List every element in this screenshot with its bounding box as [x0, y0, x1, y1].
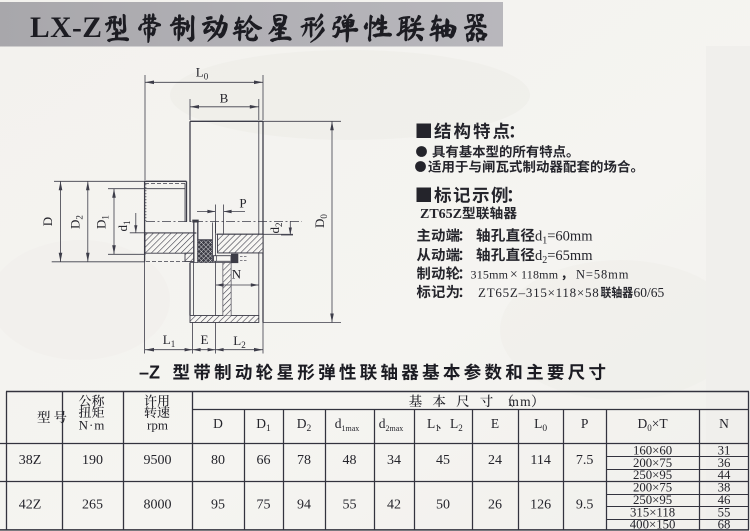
- svg-text:38Z: 38Z: [19, 453, 42, 468]
- svg-text:N: N: [232, 267, 242, 282]
- svg-text:26: 26: [488, 498, 502, 513]
- svg-text:66: 66: [257, 453, 271, 468]
- svg-text:9.5: 9.5: [576, 498, 594, 513]
- svg-text:78: 78: [297, 453, 311, 468]
- svg-text:7.5: 7.5: [576, 453, 594, 468]
- svg-text:60/65: 60/65: [634, 285, 665, 300]
- svg-text:D: D: [213, 416, 223, 431]
- svg-text:94: 94: [297, 498, 311, 513]
- svg-text:9500: 9500: [144, 453, 172, 468]
- svg-text:×: ×: [510, 267, 518, 282]
- svg-text:N=58mm: N=58mm: [576, 268, 629, 282]
- svg-text:rpm: rpm: [147, 418, 168, 433]
- svg-text:–Z: –Z: [139, 363, 160, 383]
- svg-text:ZT65Z: ZT65Z: [420, 207, 462, 222]
- svg-text:75: 75: [257, 498, 271, 513]
- svg-text:50: 50: [436, 498, 450, 513]
- svg-text:265: 265: [82, 498, 103, 513]
- svg-text:190: 190: [82, 453, 103, 468]
- svg-text:N: N: [719, 416, 729, 431]
- svg-text:80: 80: [211, 453, 225, 468]
- svg-text:95: 95: [211, 498, 225, 513]
- svg-text:LX-Z: LX-Z: [30, 12, 102, 44]
- svg-text:55: 55: [343, 498, 357, 513]
- svg-text:42Z: 42Z: [19, 498, 42, 513]
- svg-text:114: 114: [530, 453, 550, 468]
- svg-text:E: E: [491, 416, 499, 431]
- svg-text:D: D: [40, 217, 55, 226]
- svg-text:42: 42: [387, 498, 401, 513]
- svg-text:24: 24: [488, 453, 502, 468]
- svg-text:D0×T: D0×T: [638, 416, 669, 433]
- svg-text:400×150: 400×150: [630, 518, 676, 531]
- svg-text:34: 34: [387, 453, 401, 468]
- svg-text:48: 48: [343, 453, 357, 468]
- svg-text:118mm: 118mm: [521, 268, 559, 282]
- svg-text:68: 68: [718, 518, 731, 531]
- svg-text:126: 126: [530, 498, 551, 513]
- svg-text:315mm: 315mm: [471, 268, 509, 282]
- svg-text:E: E: [201, 332, 209, 347]
- svg-text:P: P: [239, 196, 246, 211]
- svg-text:B: B: [220, 91, 229, 106]
- svg-text:45: 45: [436, 453, 450, 468]
- svg-text:mm: mm: [508, 394, 531, 409]
- svg-text:N·m: N·m: [79, 418, 106, 433]
- svg-text:P: P: [581, 416, 589, 431]
- svg-text:8000: 8000: [144, 498, 172, 513]
- svg-text:ZT65Z–315×118×58: ZT65Z–315×118×58: [478, 285, 600, 300]
